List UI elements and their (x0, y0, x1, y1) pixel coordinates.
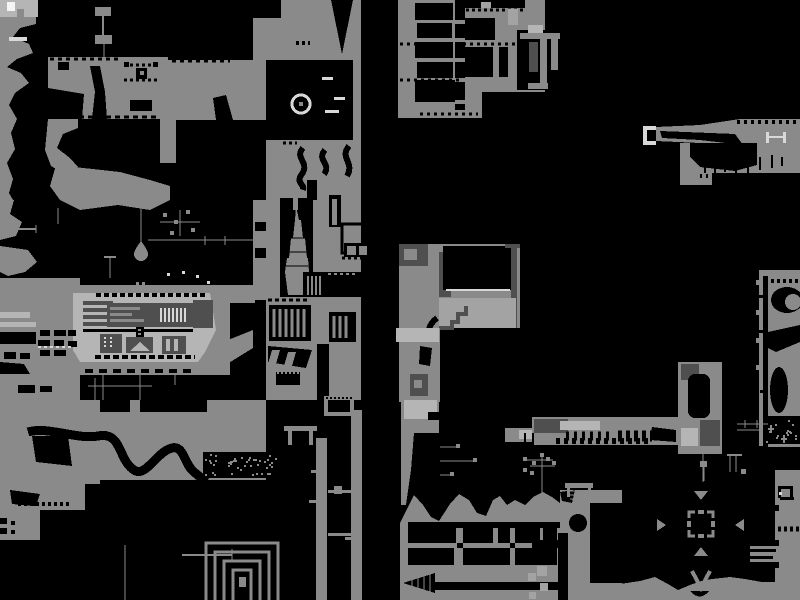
right-wall-structure (756, 270, 800, 447)
game-map-screen (0, 0, 800, 600)
central-tower (266, 195, 370, 400)
top-center-landmass (253, 0, 361, 200)
world-map-canvas[interactable] (0, 0, 800, 600)
